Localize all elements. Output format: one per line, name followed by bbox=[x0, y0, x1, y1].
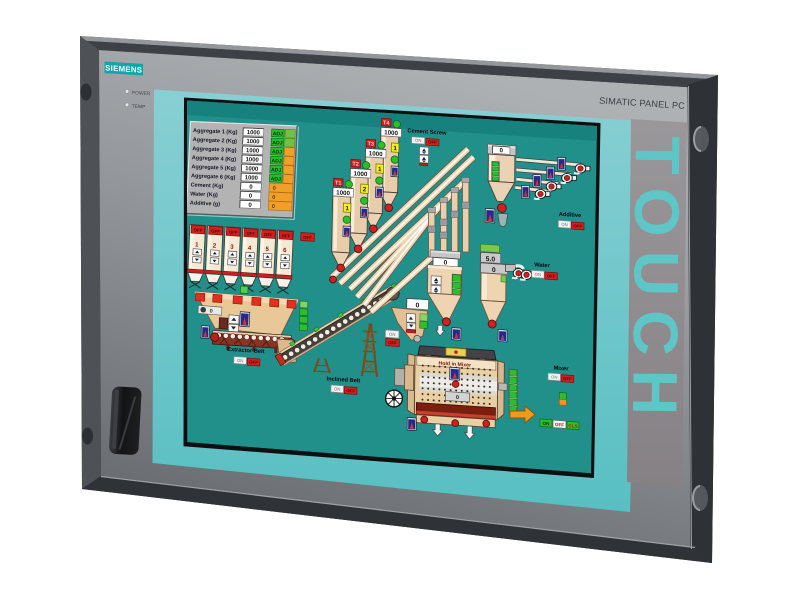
svg-text:0: 0 bbox=[272, 186, 275, 192]
svg-text:0: 0 bbox=[499, 147, 503, 154]
svg-text:ON: ON bbox=[389, 332, 396, 337]
svg-text:5.0: 5.0 bbox=[486, 256, 496, 264]
svg-text:ON: ON bbox=[551, 374, 558, 379]
svg-text:1000: 1000 bbox=[354, 170, 368, 178]
svg-text:ON: ON bbox=[237, 358, 244, 363]
svg-text:ON: ON bbox=[561, 222, 568, 227]
svg-text:ON: ON bbox=[543, 421, 551, 426]
svg-text:0: 0 bbox=[416, 302, 420, 309]
svg-text:OFF: OFF bbox=[281, 233, 290, 239]
svg-text:T4: T4 bbox=[383, 120, 389, 126]
svg-text:Additive (g): Additive (g) bbox=[190, 200, 221, 207]
svg-text:CLS: CLS bbox=[568, 423, 577, 429]
svg-text:POWER: POWER bbox=[132, 90, 151, 97]
svg-text:ADJ: ADJ bbox=[272, 149, 283, 155]
svg-text:OFF: OFF bbox=[264, 232, 273, 238]
svg-text:ADJ: ADJ bbox=[271, 167, 282, 173]
svg-text:OFF: OFF bbox=[303, 235, 312, 241]
svg-text:0: 0 bbox=[444, 259, 448, 266]
svg-text:OFF: OFF bbox=[211, 229, 220, 235]
svg-text:1000: 1000 bbox=[247, 130, 261, 137]
svg-text:TEMP: TEMP bbox=[132, 104, 146, 111]
svg-text:ADJ: ADJ bbox=[271, 158, 282, 164]
svg-text:1000: 1000 bbox=[246, 139, 260, 146]
svg-text:ADJ: ADJ bbox=[271, 176, 282, 182]
svg-text:OFF: OFF bbox=[555, 422, 564, 428]
svg-text:OFF: OFF bbox=[428, 139, 437, 145]
svg-text:ADJ: ADJ bbox=[273, 131, 284, 137]
svg-text:OFF: OFF bbox=[246, 231, 255, 237]
svg-text:OFF: OFF bbox=[229, 230, 238, 236]
svg-text:OFF: OFF bbox=[547, 273, 556, 279]
svg-text:1000: 1000 bbox=[246, 148, 260, 155]
svg-text:1000: 1000 bbox=[245, 157, 259, 164]
svg-text:ADJ: ADJ bbox=[272, 140, 283, 146]
svg-text:TOUCH: TOUCH bbox=[619, 136, 692, 430]
svg-text:0: 0 bbox=[272, 204, 275, 210]
svg-text:1000: 1000 bbox=[369, 150, 383, 158]
svg-text:Mixer: Mixer bbox=[554, 366, 570, 373]
svg-text:OFF: OFF bbox=[193, 227, 202, 233]
svg-text:OFF: OFF bbox=[573, 223, 582, 229]
svg-text:T3: T3 bbox=[368, 141, 374, 147]
svg-text:T1: T1 bbox=[335, 180, 341, 186]
svg-text:Water: Water bbox=[534, 262, 550, 269]
svg-text:0: 0 bbox=[456, 395, 459, 401]
svg-text:1000: 1000 bbox=[245, 166, 259, 173]
svg-text:ON: ON bbox=[535, 272, 542, 277]
svg-text:1000: 1000 bbox=[245, 175, 259, 182]
svg-text:OFF: OFF bbox=[346, 388, 355, 394]
svg-text:0: 0 bbox=[272, 195, 275, 201]
svg-text:Water (Kg): Water (Kg) bbox=[190, 191, 218, 198]
svg-text:OFF: OFF bbox=[249, 360, 258, 366]
svg-text:1000: 1000 bbox=[336, 189, 350, 197]
svg-text:0: 0 bbox=[210, 309, 213, 315]
svg-text:ON: ON bbox=[334, 386, 341, 391]
svg-text:OFF: OFF bbox=[388, 340, 397, 346]
svg-text:ON: ON bbox=[415, 138, 422, 143]
svg-text:T2: T2 bbox=[352, 161, 358, 167]
svg-text:OFF: OFF bbox=[563, 376, 572, 382]
svg-text:1000: 1000 bbox=[384, 129, 398, 137]
svg-text:0: 0 bbox=[492, 267, 496, 274]
